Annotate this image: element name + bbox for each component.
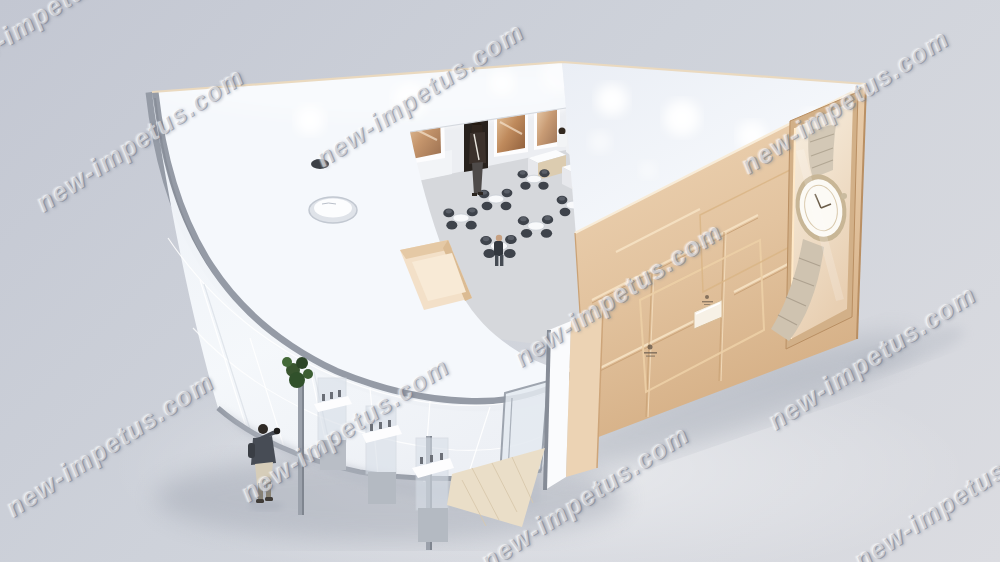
camera bbox=[274, 428, 280, 434]
booth-render bbox=[0, 0, 1000, 562]
skylight-hole bbox=[309, 197, 357, 223]
counter-object bbox=[311, 159, 329, 169]
backpack bbox=[248, 443, 255, 458]
booth-render-scene: new-impetus.com new-impetus.com new-impe… bbox=[0, 0, 1000, 562]
display-pedestal bbox=[412, 438, 454, 542]
support-post bbox=[298, 375, 304, 515]
display-pedestal bbox=[362, 406, 402, 504]
photographer-shadow bbox=[249, 502, 283, 511]
